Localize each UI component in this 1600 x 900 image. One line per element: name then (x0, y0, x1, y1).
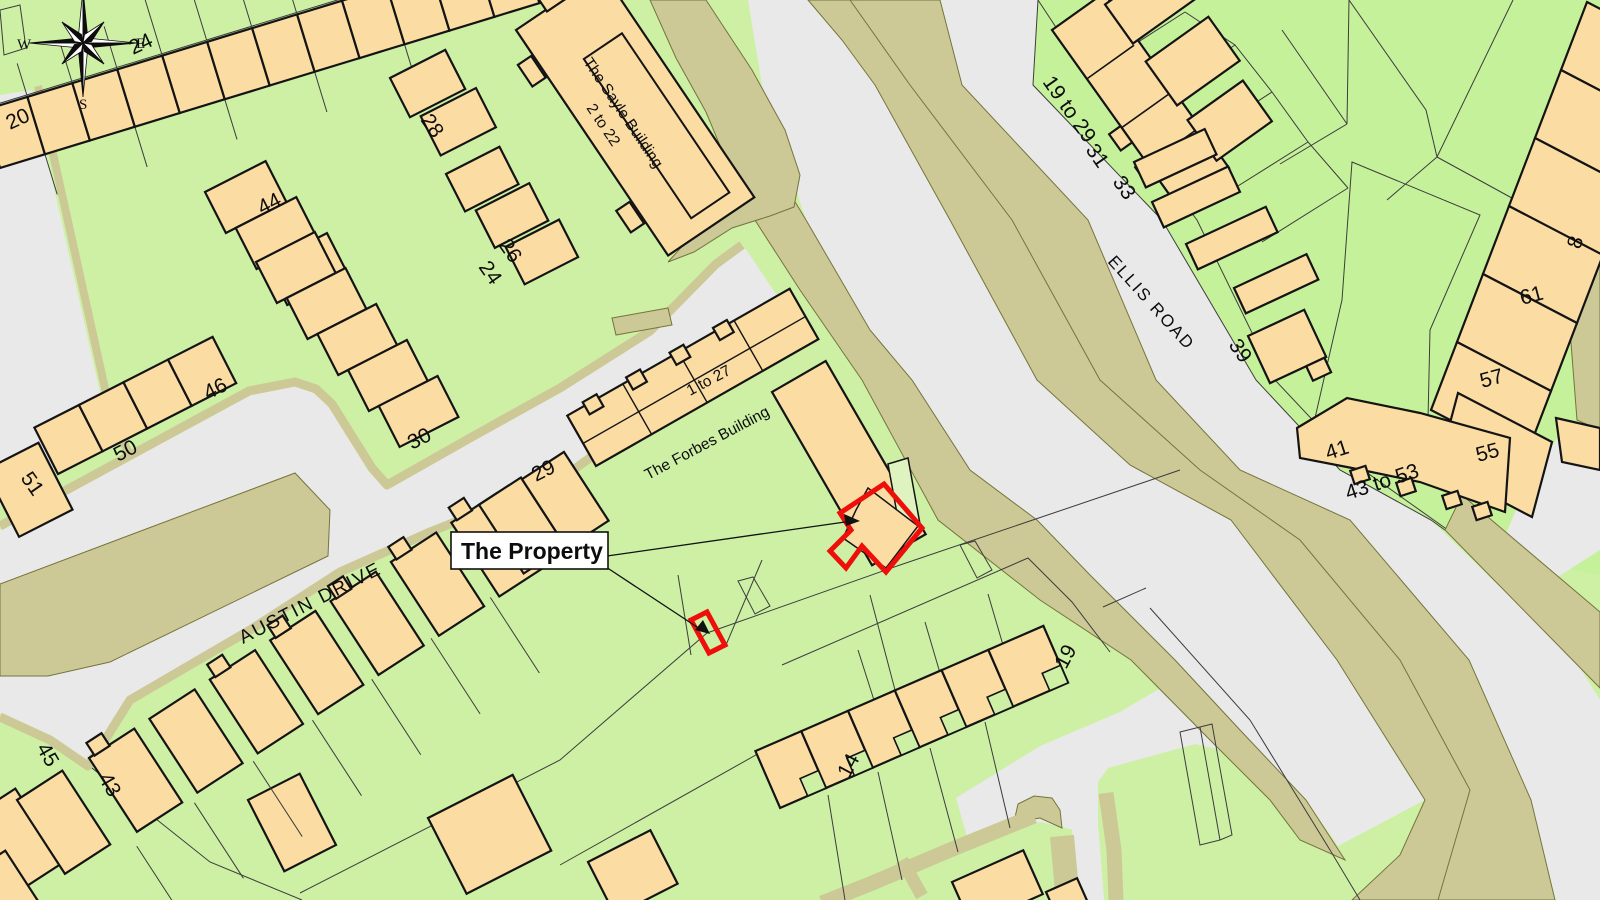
svg-text:S: S (79, 97, 87, 113)
svg-text:W: W (17, 37, 32, 53)
svg-text:The Property: The Property (461, 538, 603, 564)
svg-text:E: E (136, 36, 145, 52)
